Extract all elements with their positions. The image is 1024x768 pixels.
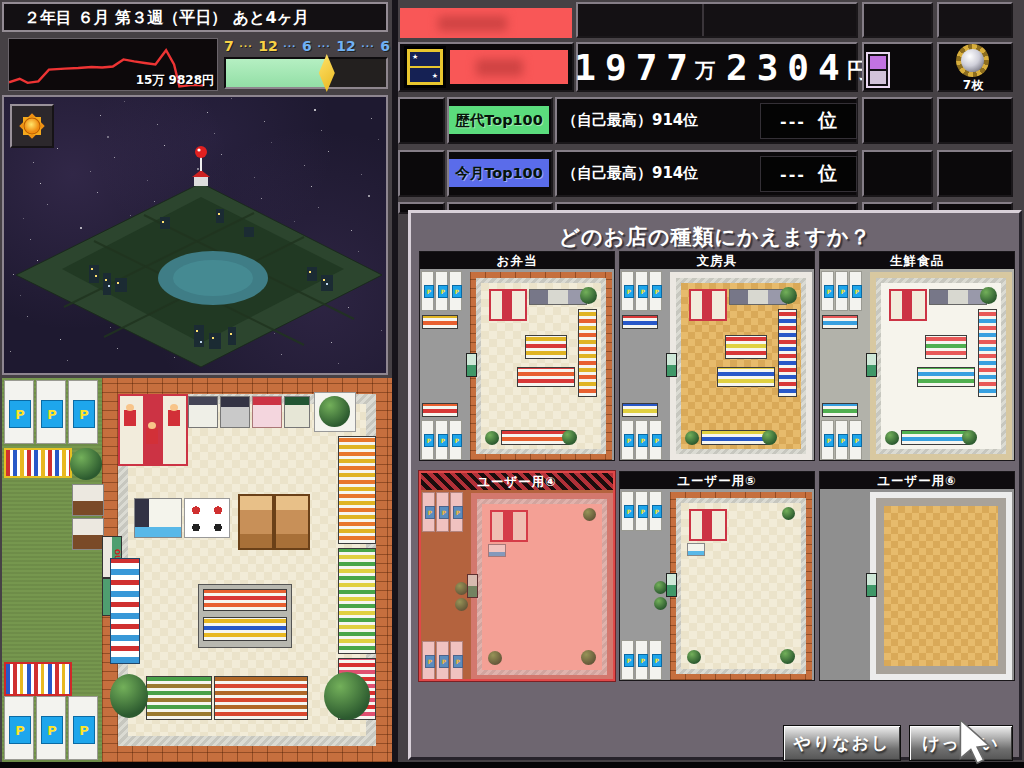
card-terrain-shelf: [422, 403, 458, 417]
card-counter: [689, 289, 727, 321]
card-bush: [780, 287, 797, 304]
card-parking-stall: P: [635, 491, 648, 531]
store-card-label: 生鮮食品: [820, 252, 1014, 269]
rank1-empty-cell-2: [937, 97, 1013, 144]
bottom-shelf-deli: [146, 676, 212, 720]
card-register: [687, 543, 705, 556]
mid-shelf-unit: [198, 584, 292, 648]
card-parking-sign: P: [624, 285, 634, 298]
card-bush: [762, 430, 777, 445]
bush: [110, 674, 148, 718]
card-parking-sign: P: [852, 285, 862, 298]
confirm-button[interactable]: けってい: [909, 725, 1013, 761]
card-appliances: [729, 289, 787, 305]
player-store-flag-marker: [192, 146, 210, 186]
card-parking-sign: P: [452, 285, 462, 298]
sales-graph-panel: 15万 9828円 7···12···6···12···6: [2, 36, 390, 93]
card-store-building: [870, 492, 1012, 680]
hud-top-empty-cell-3: [937, 2, 1013, 38]
card-parking-stall: P: [635, 640, 648, 680]
parking-sign: P: [9, 400, 31, 428]
card-parking-sign: P: [638, 285, 648, 298]
parking-stall: P: [36, 696, 66, 760]
rank1-empty-cell-1: [862, 97, 933, 144]
card-store-door: [866, 353, 877, 377]
card-parking-stall: P: [649, 420, 662, 460]
card-bush: [685, 431, 699, 445]
shelf-snacks: [338, 548, 376, 654]
coin-count-label: 7枚: [950, 77, 996, 94]
card-parking-sign: P: [652, 505, 662, 518]
store-card-fresh-food[interactable]: 生鮮食品PPPPPP: [819, 251, 1015, 461]
money-unit-man: 万: [695, 57, 715, 84]
store-card-user4-selected[interactable]: ユーザー用④PPPPPP: [419, 471, 615, 681]
card-counter-carpet: [902, 291, 912, 319]
parking-sign: P: [73, 400, 95, 428]
mid-shelf-row: [203, 589, 287, 611]
card-shelf-mid2: [717, 367, 775, 387]
card-parking-sign: P: [424, 434, 434, 447]
card-parking-sign: P: [824, 434, 834, 447]
vending-machine: [72, 518, 104, 550]
card-shelf-bottom: [901, 430, 969, 445]
ranking-badge-monthly: 今月Top100: [449, 159, 549, 187]
bottom-shelf-bento: [214, 676, 308, 720]
card-shelf-bottom: [501, 430, 569, 445]
card-counter-carpet: [702, 511, 712, 539]
parking-sign: P: [73, 716, 95, 744]
money-display-cell: 1977 万 2304 円: [576, 42, 858, 92]
card-parking-stall: P: [849, 420, 862, 460]
card-shelf-mid2: [517, 367, 575, 387]
rank2-current-rank: ---位: [760, 156, 857, 192]
card-parking-stall: P: [621, 271, 634, 311]
store-card-label: ユーザー用④: [421, 473, 613, 490]
parking-stall: P: [4, 696, 34, 760]
hud-top-empty-cell-2: [862, 2, 933, 38]
ranking-badge-alltime: 歴代Top100: [449, 106, 549, 134]
staff-person: [124, 410, 136, 426]
card-shelf-right: [778, 309, 797, 397]
bush: [324, 672, 370, 720]
card-parking-stall: P: [649, 491, 662, 531]
store-card-label: ユーザー用⑥: [820, 472, 1014, 489]
card-bush: [562, 430, 577, 445]
city-minimap[interactable]: [2, 95, 388, 375]
card-parking-stall: P: [621, 640, 634, 680]
card-store-building: [670, 492, 812, 680]
parking-sign: P: [41, 400, 63, 428]
staff-person: [146, 428, 158, 444]
vending-shelf: [4, 448, 72, 478]
card-parking-sign: P: [838, 285, 848, 298]
card-parking-sign: P: [652, 285, 662, 298]
sales-sparkline: 15万 9828円: [8, 38, 218, 91]
left-shelf-unit: [110, 558, 140, 664]
card-bush: [980, 287, 997, 304]
card-parking-stall: P: [421, 271, 434, 311]
parking-stall: P: [4, 380, 34, 444]
redo-button[interactable]: やりなおし: [783, 725, 901, 761]
card-parking-sign: P: [624, 434, 634, 447]
plant-bush: [319, 396, 350, 427]
rank2-self-best: （自己最高）914位: [562, 164, 698, 183]
card-shelf-right: [578, 309, 597, 397]
phone-machine: [284, 396, 310, 428]
city-isometric-art: [4, 97, 386, 373]
card-parking-stall: P: [435, 420, 448, 460]
door-item-icon: [866, 52, 890, 88]
panel-divider: [392, 0, 398, 768]
rank1-self-best: （自己最高）914位: [562, 111, 698, 130]
money-sub-digits: 2304: [717, 47, 849, 88]
checkout-counter: [118, 394, 188, 466]
parking-stall: P: [68, 380, 98, 444]
player-flag-icon: ★★: [404, 46, 446, 88]
card-parking-sign: P: [638, 434, 648, 447]
card-bush: [485, 431, 499, 445]
card-parking-sign: P: [838, 434, 848, 447]
card-store-building: [470, 272, 612, 460]
weather-sun-icon: [10, 104, 54, 148]
card-store-door: [666, 573, 677, 597]
store-card-label: 文房具: [620, 252, 814, 269]
card-parking-stall: P: [821, 420, 834, 460]
mid-shelf-row: [203, 617, 287, 641]
parking-stall: P: [36, 380, 66, 444]
card-store-door: [666, 353, 677, 377]
card-parking-stall: P: [621, 491, 634, 531]
card-parking-stall: P: [821, 271, 834, 311]
day-progress-fill: [226, 59, 327, 87]
card-counter: [689, 509, 727, 541]
card-counter: [489, 289, 527, 321]
card-parking-sign: P: [652, 654, 662, 667]
card-counter: [889, 289, 927, 321]
bread-shelf: [274, 494, 310, 550]
dialog-title: どのお店の種類にかえますか？: [411, 223, 1019, 251]
card-parking-stall: P: [835, 420, 848, 460]
card-parking-sign: P: [638, 654, 648, 667]
card-bush: [580, 287, 597, 304]
store-card-stationery[interactable]: 文房具PPPPPP: [619, 251, 815, 461]
vending-shelf: [4, 662, 72, 696]
staff-head: [170, 404, 178, 411]
staff-head: [148, 422, 156, 429]
coin-medal-icon: [956, 44, 989, 77]
card-parking-sign: P: [852, 434, 862, 447]
card-parking-sign: P: [624, 654, 634, 667]
card-counter-carpet: [702, 291, 712, 319]
card-store-floor: [681, 503, 801, 669]
card-bush: [782, 507, 795, 520]
card-parking-stall: P: [449, 271, 462, 311]
card-store-building: [870, 272, 1012, 460]
store-card-label: お弁当: [420, 252, 614, 269]
card-parking-stall: P: [649, 640, 662, 680]
date-status-bar: ２年目 ６月 第３週（平日） あと4ヶ月: [2, 2, 388, 32]
card-bush: [687, 650, 701, 664]
ticket-machine: [252, 396, 282, 428]
time-axis: 7···12···6···12···6: [224, 36, 390, 56]
store-card-user5[interactable]: ユーザー用⑤PPPPPP: [619, 471, 815, 681]
card-store-floor: [884, 506, 998, 666]
player-store-map[interactable]: PPPPPPOUTIN: [2, 378, 392, 762]
store-card-user6[interactable]: ユーザー用⑥: [819, 471, 1015, 681]
card-parking-sign: P: [652, 434, 662, 447]
rank2-empty-cell-2: [937, 150, 1013, 197]
rank2-left-cell: [398, 150, 445, 197]
card-parking-sign: P: [438, 434, 448, 447]
card-shelf-mid: [925, 335, 967, 359]
card-store-floor: [681, 283, 801, 449]
plant-tile: [314, 392, 356, 432]
card-shelf-mid: [725, 335, 767, 359]
money-main-digits: 1977: [565, 47, 697, 88]
card-counter-carpet: [502, 291, 512, 319]
card-parking-stall: P: [635, 420, 648, 460]
card-shelf-right: [978, 309, 997, 397]
game-screen: ２年目 ６月 第３週（平日） あと4ヶ月 15万 9828円 7···12···…: [0, 0, 1024, 768]
lucky-cat-shelf: [184, 498, 230, 538]
card-bush: [885, 431, 899, 445]
staff-head: [126, 404, 134, 411]
rank2-empty-cell-1: [862, 150, 933, 197]
store-card-bento[interactable]: お弁当PPPPPP: [419, 251, 615, 461]
card-parking-sign: P: [438, 285, 448, 298]
card-parking-stall: P: [421, 420, 434, 460]
store-card-label: ユーザー用⑤: [620, 472, 814, 489]
rank1-current-rank: ---位: [760, 103, 857, 139]
card-shelf-mid: [525, 335, 567, 359]
card-terrain-shelf: [622, 315, 658, 329]
day-progress-bar: [224, 57, 388, 89]
parking-sign: P: [41, 716, 63, 744]
card-parking-stall: P: [635, 271, 648, 311]
rank1-left-cell: [398, 97, 445, 144]
shelf-drinks: [338, 436, 376, 544]
store-type-dialog: どのお店の種類にかえますか？ お弁当PPPPPP 文房具PPPPPP 生鮮食品P…: [408, 210, 1022, 760]
card-terrain-shelf: [422, 315, 458, 329]
card-terrain-shelf: [822, 403, 858, 417]
card-store-door: [866, 573, 877, 597]
card-store-floor: [881, 283, 1001, 449]
card-parking-stall: P: [621, 420, 634, 460]
sales-value-label: 15万 9828円: [136, 72, 214, 89]
card-shelf-bottom: [701, 430, 769, 445]
card-parking-sign: P: [824, 285, 834, 298]
store-name-bar: [450, 50, 568, 84]
card-appliances: [929, 289, 987, 305]
card-selected-tint: [421, 490, 613, 679]
card-bush: [780, 649, 795, 664]
card-store-floor: [481, 283, 601, 449]
card-parking-sign: P: [624, 505, 634, 518]
copier-machine: [188, 396, 218, 428]
parking-sign: P: [9, 716, 31, 744]
card-shelf-mid2: [917, 367, 975, 387]
atm-machine: [220, 396, 250, 428]
bottom-screen-edge: [0, 762, 1024, 768]
hud-top-empty-cell-1: [576, 2, 858, 38]
card-parking-stall: P: [649, 271, 662, 311]
player-name-bar: [400, 8, 572, 38]
card-parking-sign: P: [424, 285, 434, 298]
cash-register: [134, 498, 182, 538]
bush: [70, 448, 102, 480]
card-store-door: [466, 353, 477, 377]
parking-stall: P: [68, 696, 98, 760]
card-appliances: [529, 289, 587, 305]
card-parking-stall: P: [449, 420, 462, 460]
card-bush: [654, 597, 667, 610]
bread-shelf: [238, 494, 274, 550]
card-parking-sign: P: [452, 434, 462, 447]
vending-machine: [72, 484, 104, 516]
card-terrain-shelf: [822, 315, 858, 329]
card-parking-stall: P: [835, 271, 848, 311]
card-parking-stall: P: [849, 271, 862, 311]
card-bush: [962, 430, 977, 445]
staff-person: [168, 410, 180, 426]
card-parking-sign: P: [638, 505, 648, 518]
card-terrain-shelf: [622, 403, 658, 417]
card-store-building: [670, 272, 812, 460]
card-parking-stall: P: [435, 271, 448, 311]
